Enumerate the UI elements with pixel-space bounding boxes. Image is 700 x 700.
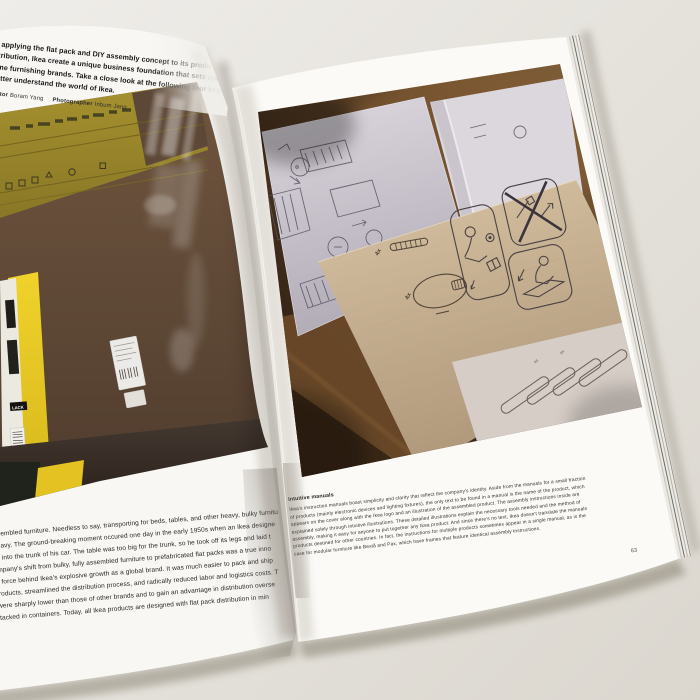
scene-artwork: LACK <box>0 0 700 700</box>
magazine-spread-photo: LACK <box>0 0 700 700</box>
lack-label-block: LACK <box>10 401 28 411</box>
lack-label: LACK <box>12 405 24 411</box>
